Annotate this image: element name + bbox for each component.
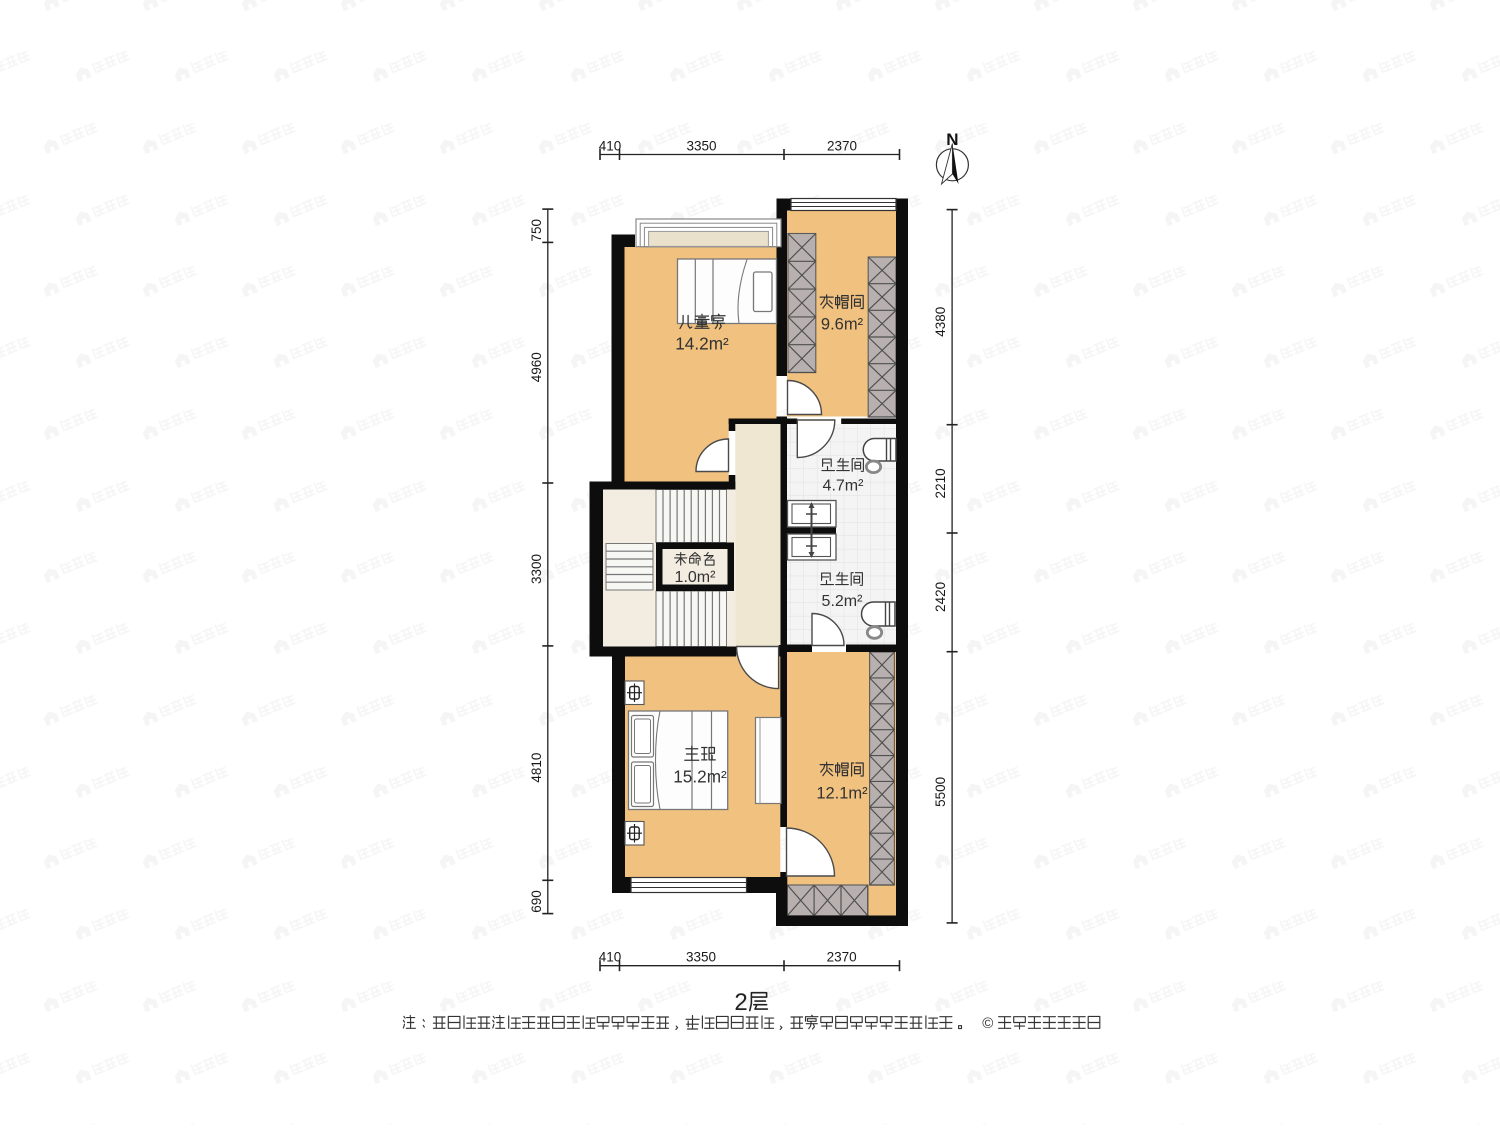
svg-text:2210: 2210: [933, 468, 948, 498]
svg-text:1.0m²: 1.0m²: [675, 569, 717, 586]
svg-text:5500: 5500: [933, 777, 948, 807]
svg-text:14.2m²: 14.2m²: [675, 334, 729, 354]
svg-text:750: 750: [529, 219, 544, 242]
svg-text:2370: 2370: [827, 139, 857, 154]
svg-text:15.2m²: 15.2m²: [673, 767, 727, 787]
svg-text:410: 410: [599, 950, 622, 965]
svg-text:3300: 3300: [529, 554, 544, 584]
svg-text:9.6m²: 9.6m²: [821, 316, 864, 334]
svg-text:2420: 2420: [933, 582, 948, 612]
svg-text:3350: 3350: [686, 950, 716, 965]
svg-text:4.7m²: 4.7m²: [823, 478, 865, 495]
svg-text:690: 690: [529, 890, 544, 913]
svg-text:410: 410: [599, 139, 622, 154]
svg-text:2: 2: [734, 989, 747, 1016]
svg-text:2370: 2370: [827, 950, 857, 965]
svg-text:©: ©: [982, 1015, 993, 1032]
svg-text:4810: 4810: [529, 753, 544, 783]
svg-text:4380: 4380: [933, 307, 948, 337]
svg-text:4960: 4960: [529, 352, 544, 382]
svg-text:12.1m²: 12.1m²: [816, 785, 868, 803]
svg-text:5.2m²: 5.2m²: [822, 593, 864, 610]
svg-text:3350: 3350: [686, 139, 716, 154]
